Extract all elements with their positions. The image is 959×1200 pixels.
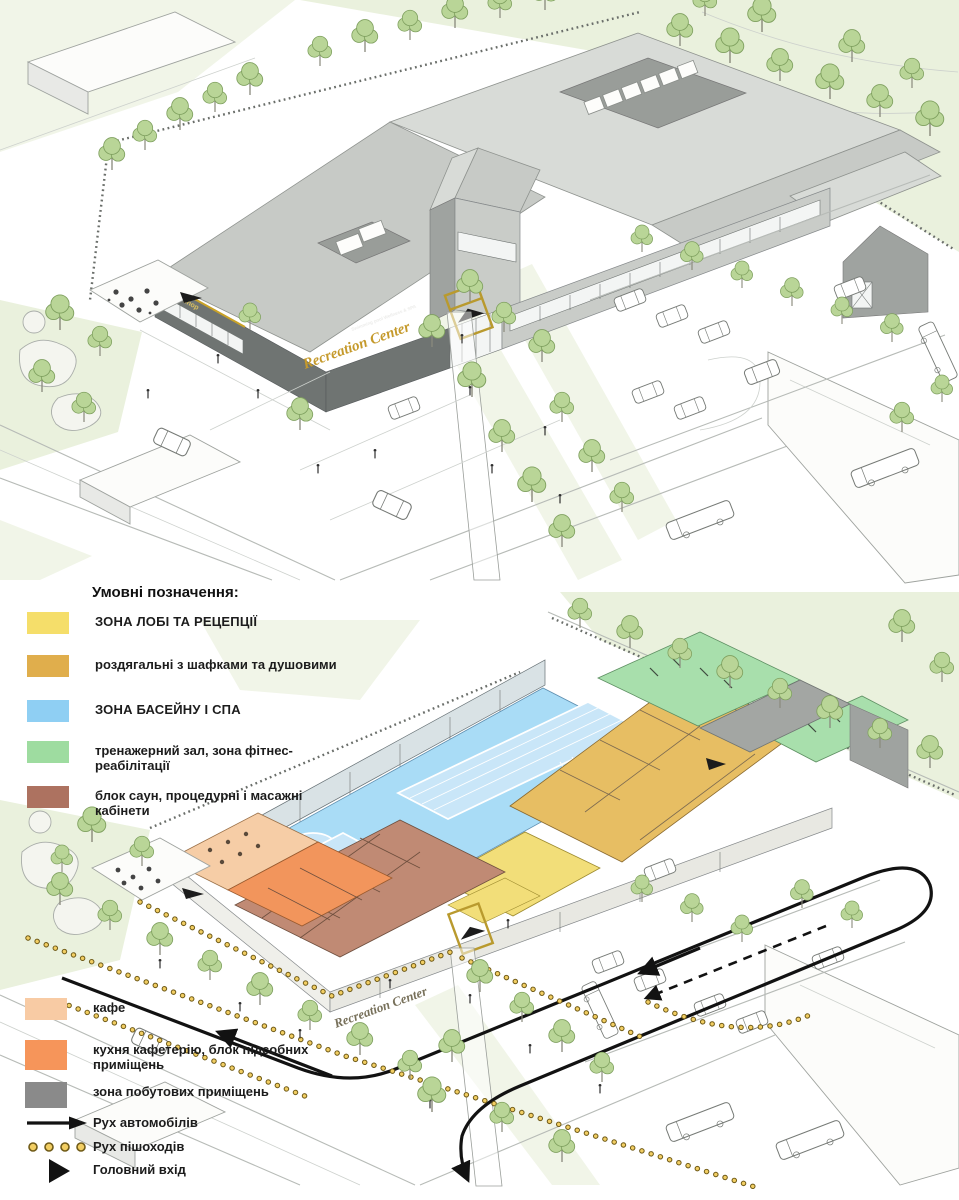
kitchen-label: кухня кафетерію, блок підсобних приміщен… — [93, 1040, 343, 1073]
sauna-label: блок саун, процедурні і масажні кабінети — [95, 786, 345, 819]
legend-row-pool: ЗОНА БАСЕЙНУ І СПА — [27, 700, 345, 722]
entrance-label: Головний вхід — [93, 1158, 186, 1177]
legend-row-sauna: блок саун, процедурні і масажні кабінети — [27, 786, 345, 819]
lobby-label: ЗОНА ЛОБІ ТА РЕЦЕПЦІЇ — [95, 612, 345, 630]
pool-label: ЗОНА БАСЕЙНУ І СПА — [95, 700, 345, 718]
cafe-swatch — [25, 998, 67, 1020]
legend-row-car-route: Рух автомобілів — [25, 1114, 198, 1132]
legend-title: Умовні позначення: — [92, 584, 239, 601]
pedestrian-label: Рух пішоходів — [93, 1138, 184, 1154]
legend-row-lockers: роздягальні з шафками та душовими — [27, 655, 345, 677]
utility-swatch — [25, 1082, 67, 1108]
top-view-exterior: coffee shop Swimming pool Wellness & SPA… — [0, 0, 959, 583]
pool-swatch — [27, 700, 69, 722]
architectural-visualization: coffee shop Swimming pool Wellness & SPA… — [0, 0, 959, 1200]
legend-row-cafe: кафе — [25, 998, 343, 1020]
legend-row-kitchen: кухня кафетерію, блок підсобних приміщен… — [25, 1040, 343, 1073]
pedestrian-dots-icon — [25, 1138, 93, 1156]
kitchen-swatch — [25, 1040, 67, 1070]
legend-row-lobby: ЗОНА ЛОБІ ТА РЕЦЕПЦІЇ — [27, 612, 345, 634]
legend-row-entrance: Головний вхід — [25, 1158, 186, 1184]
legend-row-pedestrian: Рух пішоходів — [25, 1138, 184, 1156]
utility-label: зона побутових приміщень — [93, 1082, 343, 1100]
lockers-label: роздягальні з шафками та душовими — [95, 655, 345, 673]
car-route-arrow-icon — [25, 1114, 93, 1132]
recreation-center-building: coffee shop Swimming pool Wellness & SPA… — [90, 33, 941, 580]
car-route-label: Рух автомобілів — [93, 1114, 198, 1130]
gym-swatch — [27, 741, 69, 763]
cafe-label: кафе — [93, 998, 343, 1016]
main-entrance-triangle-icon — [25, 1158, 93, 1184]
lockers-swatch — [27, 655, 69, 677]
lobby-swatch — [27, 612, 69, 634]
legend-row-gym: тренажерний зал, зона фітнес-реабілітаці… — [27, 741, 345, 774]
sauna-swatch — [27, 786, 69, 808]
gym-label: тренажерний зал, зона фітнес-реабілітаці… — [95, 741, 345, 774]
legend-row-utility: зона побутових приміщень — [25, 1082, 343, 1108]
